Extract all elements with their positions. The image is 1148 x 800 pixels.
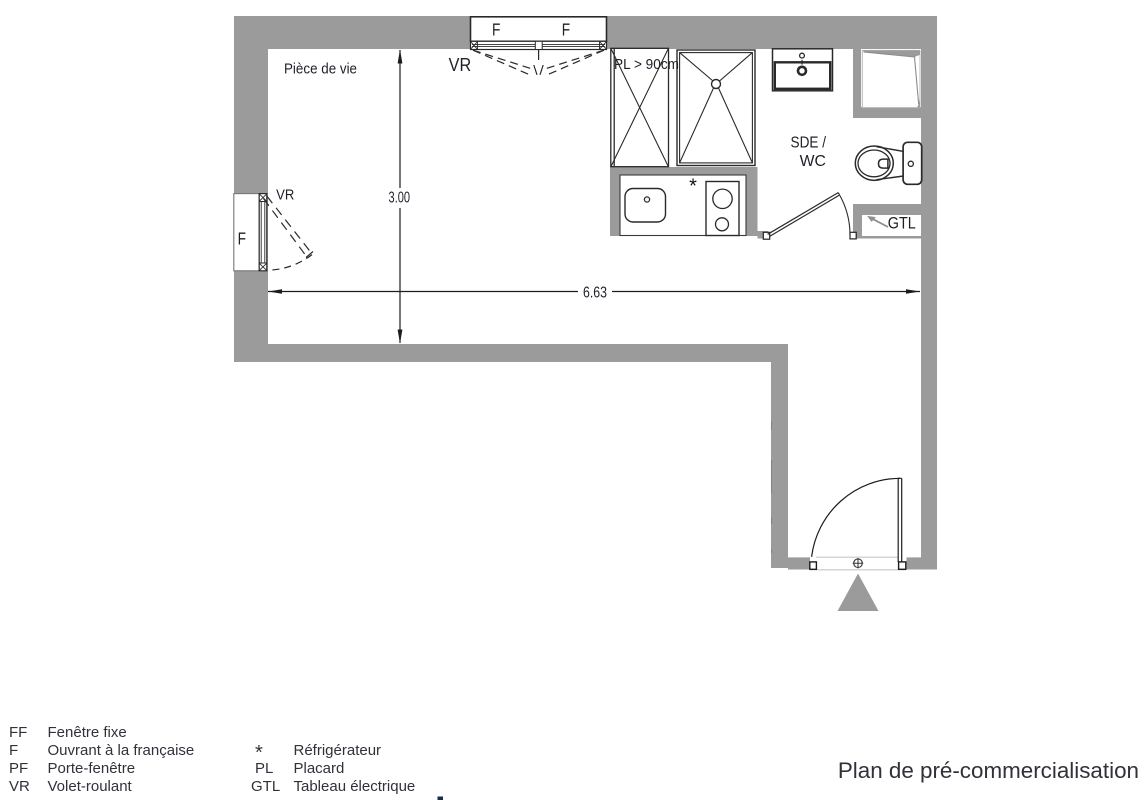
svg-text:WC: WC xyxy=(800,153,826,170)
svg-text:*: * xyxy=(689,176,697,198)
svg-text:3.00: 3.00 xyxy=(389,190,411,207)
svg-text:F: F xyxy=(492,20,500,40)
svg-text:Plan de pré-commercialisation: Plan de pré-commercialisation xyxy=(838,758,1139,783)
svg-text:Ouvrant à la française: Ouvrant à la française xyxy=(48,742,195,759)
svg-text:Réfrigérateur: Réfrigérateur xyxy=(294,742,382,759)
svg-text:Placard: Placard xyxy=(294,760,345,777)
svg-text:F: F xyxy=(9,742,18,759)
svg-text:PL: PL xyxy=(255,760,273,777)
svg-text:VR: VR xyxy=(9,778,30,795)
svg-text:SDE /: SDE / xyxy=(791,135,827,152)
svg-text:Porte-fenêtre: Porte-fenêtre xyxy=(48,760,136,777)
svg-text:Pièce de vie: Pièce de vie xyxy=(284,60,357,77)
svg-text:PF: PF xyxy=(9,760,28,777)
svg-text:GTL: GTL xyxy=(251,778,280,795)
svg-text:F: F xyxy=(562,20,570,40)
svg-text:6.63: 6.63 xyxy=(583,285,607,302)
svg-text:VR: VR xyxy=(449,55,472,75)
svg-text:Tableau électrique: Tableau électrique xyxy=(294,778,416,795)
svg-text:Fenêtre fixe: Fenêtre fixe xyxy=(48,724,127,741)
svg-text:FF: FF xyxy=(9,724,27,741)
svg-text:GTL: GTL xyxy=(888,214,916,233)
svg-text:Volet-roulant: Volet-roulant xyxy=(48,778,133,795)
svg-text:VR: VR xyxy=(276,187,294,203)
svg-text:F: F xyxy=(238,228,246,248)
svg-text:PL > 90cm: PL > 90cm xyxy=(614,56,679,73)
